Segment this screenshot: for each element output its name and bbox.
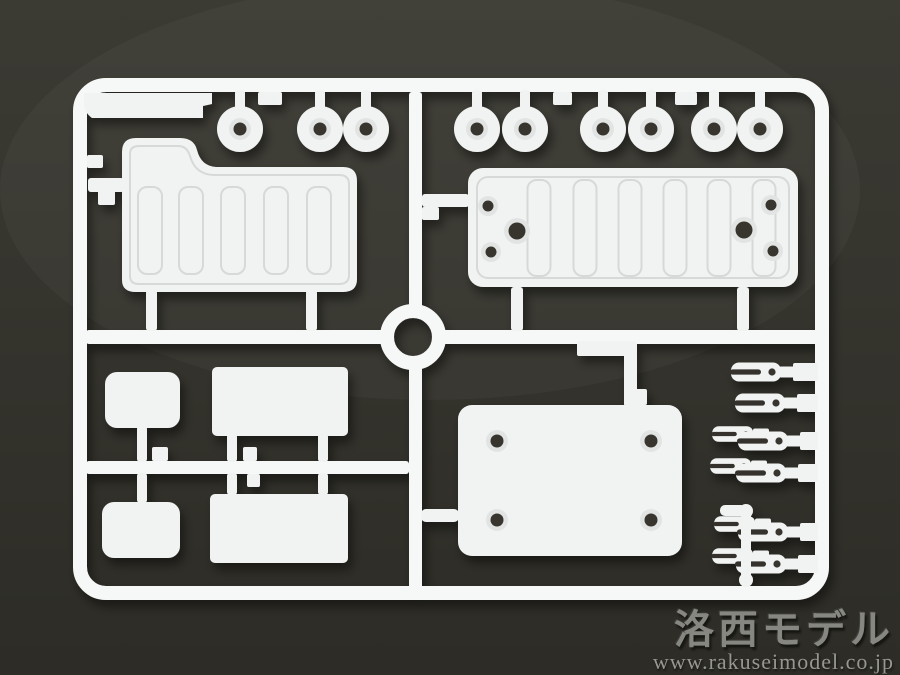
gate-tab bbox=[152, 447, 168, 461]
sprue-runner-photo bbox=[0, 0, 900, 675]
fork-slot bbox=[737, 438, 768, 443]
gate-tab bbox=[258, 92, 282, 105]
gate-tab bbox=[87, 155, 103, 168]
plate-body bbox=[458, 405, 682, 556]
fork-stem bbox=[784, 559, 800, 570]
fork-stem bbox=[786, 436, 802, 447]
gate-tab bbox=[98, 190, 115, 205]
mid-rail bbox=[86, 330, 387, 344]
divider-rail bbox=[409, 363, 422, 591]
label-tag-plate bbox=[84, 93, 212, 118]
gate-tab bbox=[577, 341, 627, 356]
gate-tab bbox=[630, 389, 647, 405]
fork-slot bbox=[711, 432, 736, 436]
plate-hole bbox=[491, 514, 504, 527]
gate-tab bbox=[800, 523, 818, 541]
ring-hole bbox=[519, 123, 532, 136]
plate-hole bbox=[645, 435, 658, 448]
fork-hole bbox=[773, 469, 780, 476]
fork-stem bbox=[784, 468, 800, 479]
fork-slot bbox=[735, 470, 766, 475]
ring-hole bbox=[597, 123, 610, 136]
ring-hole bbox=[314, 123, 327, 136]
ring-hole bbox=[645, 123, 658, 136]
fork-slot bbox=[711, 554, 736, 558]
divider-rail bbox=[409, 92, 422, 311]
gate-tab bbox=[800, 432, 818, 450]
gate-tab bbox=[797, 394, 818, 412]
pin-knob bbox=[739, 504, 753, 518]
sprue-stub bbox=[137, 426, 147, 462]
plate-hole bbox=[645, 514, 658, 527]
fork-hole bbox=[775, 528, 782, 535]
sprue-stub bbox=[318, 434, 328, 462]
fork-slot bbox=[709, 464, 734, 468]
sprue-stub bbox=[511, 287, 523, 331]
fork-part bbox=[730, 363, 818, 382]
panel-hole bbox=[486, 247, 497, 258]
fork-stem bbox=[783, 398, 799, 409]
fork-part bbox=[737, 432, 818, 451]
sprue-stub bbox=[227, 473, 237, 495]
fork-slot bbox=[734, 400, 765, 405]
panel-hole bbox=[736, 222, 753, 239]
gate-tab bbox=[247, 474, 260, 487]
ring-hole bbox=[234, 123, 247, 136]
ring-hole bbox=[754, 123, 767, 136]
ring-hole bbox=[708, 123, 721, 136]
plate-part bbox=[210, 494, 348, 563]
plate-part bbox=[102, 502, 180, 558]
sprue-stub bbox=[88, 178, 124, 192]
fork-hole bbox=[772, 399, 779, 406]
ring-hole bbox=[360, 123, 373, 136]
plate-part bbox=[212, 367, 348, 436]
gate-tab bbox=[553, 92, 572, 105]
sprue-stub bbox=[137, 473, 147, 503]
sprue-stub bbox=[306, 290, 317, 331]
sprue-stub bbox=[421, 509, 459, 522]
fork-hole bbox=[773, 560, 780, 567]
fork-slot bbox=[713, 522, 738, 526]
pin-bar bbox=[741, 510, 751, 578]
fork-stem bbox=[786, 527, 802, 538]
sub-rail bbox=[86, 461, 409, 474]
gate-tab bbox=[675, 92, 697, 105]
sprue-stub bbox=[422, 194, 469, 207]
sprue-stub bbox=[227, 434, 237, 462]
gate-tab bbox=[793, 363, 818, 381]
sprue-stub bbox=[318, 473, 328, 495]
sprue-stub bbox=[146, 290, 157, 331]
gate-tab bbox=[243, 447, 257, 461]
plate-hole bbox=[491, 435, 504, 448]
sprue-stub bbox=[737, 287, 749, 331]
fork-part bbox=[735, 464, 818, 483]
panel-hole bbox=[509, 223, 526, 240]
photo-model-kit-sprue: 洛西モデル www.rakuseimodel.co.jp bbox=[0, 0, 900, 675]
gate-tab bbox=[798, 555, 818, 573]
pin-knob bbox=[739, 573, 753, 587]
fork-hole bbox=[775, 437, 782, 444]
ring-hole bbox=[471, 123, 484, 136]
gate-tab bbox=[798, 464, 818, 482]
gate-tab bbox=[422, 207, 439, 220]
fork-part bbox=[734, 394, 818, 413]
plate-part bbox=[105, 372, 180, 428]
panel-hole bbox=[766, 200, 777, 211]
panel-hole bbox=[768, 246, 779, 257]
panel-hole bbox=[483, 201, 494, 212]
fork-stem bbox=[779, 367, 795, 378]
fork-slot bbox=[730, 369, 761, 374]
fork-hole bbox=[768, 368, 775, 375]
